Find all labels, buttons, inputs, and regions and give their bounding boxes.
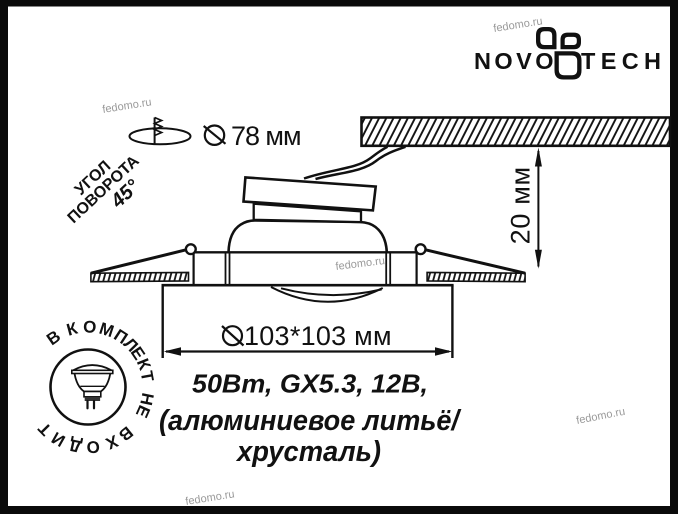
svg-text:50Вт, GX5.3, 12В,: 50Вт, GX5.3, 12В, [192,369,428,399]
svg-text:(алюминиевое литьё/: (алюминиевое литьё/ [159,405,462,437]
svg-text:О: О [86,437,101,457]
svg-text:О: О [83,317,97,336]
svg-text:103*103 мм: 103*103 мм [244,321,392,351]
svg-text:78 мм: 78 мм [231,121,302,151]
svg-text:хрусталь): хрусталь) [235,436,381,468]
svg-text:TECH: TECH [581,48,661,74]
svg-text:20 мм: 20 мм [506,166,536,244]
